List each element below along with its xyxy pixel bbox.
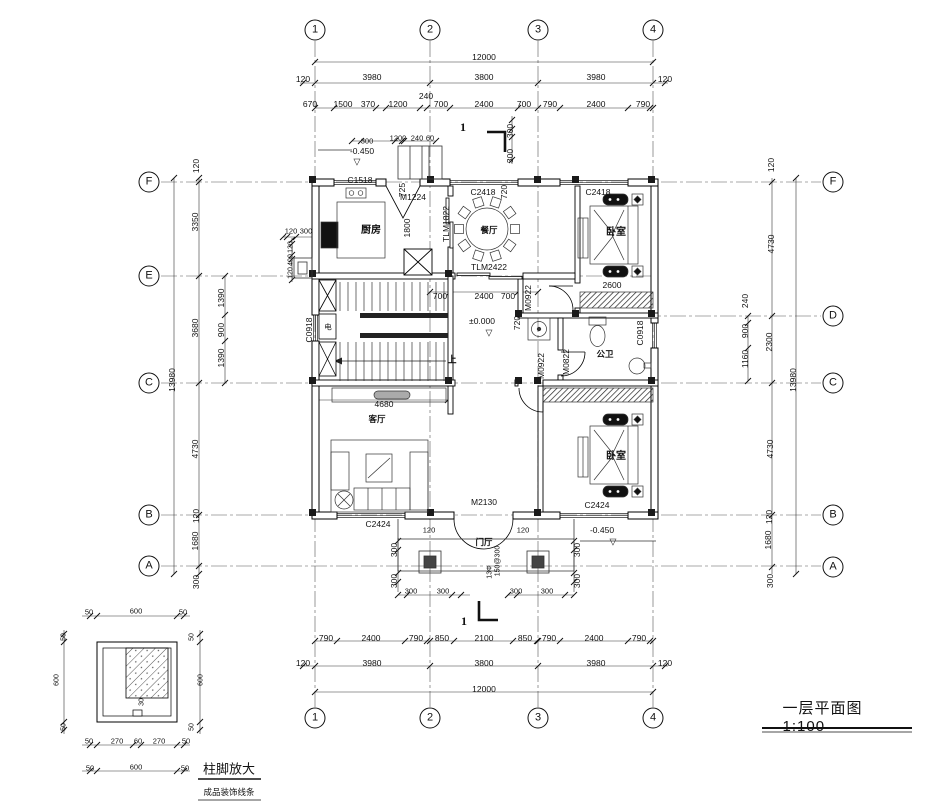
text-tinyv: 600 — [198, 674, 205, 686]
text-tiny: 300 — [437, 587, 450, 595]
text-tiny: 120 — [517, 526, 530, 534]
grid-bubble-3-top: 3 — [528, 20, 549, 41]
grid-bubble-A-right: A — [823, 557, 844, 578]
text-dim: 700 — [434, 100, 448, 109]
text-dim: 700 — [501, 292, 515, 301]
text-tiny: 240 — [411, 134, 424, 142]
text-dim: 700 — [517, 100, 531, 109]
text-tiny: 600 — [130, 763, 143, 771]
room-label-living: 客厅 — [368, 415, 385, 424]
text-tinyv: 50 — [61, 723, 68, 731]
text-dimv: 300 — [390, 543, 399, 557]
sliding-door-TLM2422: TLM2422 — [471, 263, 507, 272]
room-label-bedroom-top: 卧室 — [606, 228, 626, 238]
text-tiny: 300 — [300, 227, 313, 235]
text-dim: 240 — [419, 92, 433, 101]
text-tiny: 270 — [111, 737, 124, 745]
text-tinyv: 30 — [139, 698, 146, 706]
grid-bubble-4-top: 4 — [643, 20, 664, 41]
text-dim: 790 — [542, 634, 556, 643]
text-dim: 2400 — [362, 634, 381, 643]
text-tiny: 50 — [181, 764, 189, 772]
window-C2424-bedroom: C2424 — [584, 501, 609, 510]
text-dim: 790 — [319, 634, 333, 643]
text-dim: 2400 — [475, 292, 494, 301]
text-tiny: 300 — [510, 587, 523, 595]
text-dimv: 720 — [500, 185, 509, 199]
text-dimv: 120 — [192, 509, 201, 523]
text-dimv: 725 — [398, 183, 407, 197]
text-dimv: 900 — [741, 324, 750, 338]
text-tiny: 50 — [182, 737, 190, 745]
window-C0918-right: C0918 — [636, 320, 645, 345]
grid-bubble-F-right: F — [823, 172, 844, 193]
text-dimv: 300 — [573, 574, 582, 588]
text-dimv: 120 — [765, 510, 774, 524]
text-dim: 3980 — [587, 659, 606, 668]
text-dimv: 13980 — [789, 368, 798, 392]
text-tinyv: 120 — [288, 241, 295, 253]
text-dim: 2600 — [603, 281, 622, 290]
grid-bubble-1-top: 1 — [305, 20, 326, 41]
text-dim: 1500 — [334, 100, 353, 109]
text-dim: 3800 — [475, 659, 494, 668]
level-triangle-bottom: ▽ — [610, 538, 617, 547]
grid-bubble-2-bottom: 2 — [420, 708, 441, 729]
grid-bubble-E-left: E — [139, 266, 160, 287]
window-C0918-left: C0918 — [305, 317, 314, 342]
text-dim: 4680 — [375, 400, 394, 409]
text-tiny: 50 — [179, 608, 187, 616]
room-label-bedroom-bottom: 卧室 — [606, 452, 626, 462]
text-dim: 12000 — [472, 53, 496, 62]
text-tiny: 300 — [405, 587, 418, 595]
text-tiny: 50 — [86, 764, 94, 772]
stair-up-label: 上 — [447, 356, 456, 365]
section-mark-1-top: 1 — [460, 121, 466, 133]
text-dim: 3980 — [363, 73, 382, 82]
text-dimv: 3350 — [191, 213, 200, 232]
text-dimv: 2300 — [765, 333, 774, 352]
text-tiny: 120 — [285, 227, 298, 235]
text-tinyv: 50 — [189, 723, 196, 731]
text-dimv: 1390 — [217, 289, 226, 308]
text-tinyv: 150@300 — [495, 546, 502, 576]
door-M0922-bedroom-top: M0922 — [524, 285, 533, 311]
text-dim: 850 — [518, 634, 532, 643]
text-dimv: 300 — [506, 124, 515, 138]
text-dimv: 1390 — [217, 349, 226, 368]
drawing-title: 一层平面图 1:100 — [783, 697, 890, 735]
grid-bubble-1-bottom: 1 — [305, 708, 326, 729]
door-M0822-bath: M0822 — [562, 349, 571, 375]
text-tiny: 270 — [153, 737, 166, 745]
door-M2130-entry: M2130 — [471, 498, 497, 507]
text-dim: 790 — [632, 634, 646, 643]
text-dimv: 1160 — [741, 350, 750, 368]
text-tiny: 50 — [85, 737, 93, 745]
text-dim: 700 — [433, 292, 447, 301]
text-dim: 2400 — [587, 100, 606, 109]
text-dim: 120 — [296, 659, 310, 668]
text-dimv: 900 — [217, 323, 226, 337]
text-dimv: 300 — [766, 574, 775, 588]
level-mark-bottom: -0.450 — [590, 526, 614, 535]
text-dimv: 1680 — [191, 532, 200, 551]
text-dim: 2100 — [475, 634, 494, 643]
text-dimv: 720 — [513, 316, 522, 330]
text-tiny: 60 — [134, 737, 142, 745]
text-dim: 670 — [303, 100, 317, 109]
text-dim: 3800 — [475, 73, 494, 82]
section-mark-1-bottom: 1 — [461, 615, 467, 627]
text-dim: 790 — [409, 634, 423, 643]
text-dim: 3980 — [363, 659, 382, 668]
text-dimv: 3680 — [191, 319, 200, 338]
text-dimv: 4730 — [191, 440, 200, 459]
text-dim: 850 — [435, 634, 449, 643]
text-dim: 2400 — [475, 100, 494, 109]
text-dimv: 300 — [390, 574, 399, 588]
room-label-bathroom: 公卫 — [596, 350, 613, 359]
text-tiny: 50 — [85, 608, 93, 616]
text-dimv: 1800 — [403, 219, 412, 238]
grid-bubble-D-right: D — [823, 306, 844, 327]
text-tiny: 60 — [426, 134, 434, 142]
text-tiny: 300 — [361, 137, 374, 145]
text-tinyv: 13Φ — [487, 565, 494, 578]
text-dimv: 4730 — [767, 235, 776, 254]
text-tinyv: 50 — [61, 633, 68, 641]
text-tinyv: 600 — [54, 674, 61, 686]
grid-bubble-3-bottom: 3 — [528, 708, 549, 729]
text-tiny: 600 — [130, 607, 143, 615]
text-overlay: 12341234FECBAFDCBA1200012039803800398012… — [0, 0, 943, 803]
room-label-kitchen: 厨房 — [361, 226, 381, 236]
text-dimv: 300 — [573, 543, 582, 557]
window-C2418-dining: C2418 — [470, 188, 495, 197]
text-dimv: 300 — [506, 149, 515, 163]
text-dim: 790 — [543, 100, 557, 109]
detail-title: 柱脚放大 — [203, 759, 255, 778]
text-dimv: 4730 — [766, 440, 775, 459]
level-triangle-zero: ▽ — [486, 329, 493, 338]
text-dim: 3980 — [587, 73, 606, 82]
grid-bubble-B-right: B — [823, 505, 844, 526]
grid-bubble-C-left: C — [139, 373, 160, 394]
grid-bubble-B-left: B — [139, 505, 160, 526]
grid-bubble-F-left: F — [139, 172, 160, 193]
window-C2424-living: C2424 — [365, 520, 390, 529]
text-dim: 120 — [658, 75, 672, 84]
grid-bubble-2-top: 2 — [420, 20, 441, 41]
electric-panel-label: 电 — [324, 323, 332, 331]
text-dimv: 300 — [192, 575, 201, 589]
text-dim: 120 — [296, 75, 310, 84]
detail-subtitle: 成品装饰线条 — [203, 786, 254, 798]
text-dim: 1200 — [389, 100, 408, 109]
text-dim: 2400 — [585, 634, 604, 643]
text-dim: 790 — [636, 100, 650, 109]
sliding-door-TLM1822: TLM1822 — [442, 206, 451, 242]
text-dim: 120 — [658, 659, 672, 668]
grid-bubble-4-bottom: 4 — [643, 708, 664, 729]
grid-bubble-A-left: A — [139, 556, 160, 577]
window-C2418-bedroom: C2418 — [585, 188, 610, 197]
text-tinyv: 120 — [288, 267, 295, 279]
floor-plan-canvas: 12341234FECBAFDCBA1200012039803800398012… — [0, 0, 943, 803]
text-dimv: 120 — [192, 159, 201, 173]
text-tinyv: 400 — [288, 254, 295, 266]
room-label-dining: 餐厅 — [480, 226, 497, 235]
room-label-foyer: 门厅 — [475, 538, 492, 547]
text-dim: 12000 — [472, 685, 496, 694]
level-triangle-top: ▽ — [354, 158, 361, 167]
grid-bubble-C-right: C — [823, 373, 844, 394]
text-tiny: 1200 — [390, 134, 407, 142]
text-dimv: 120 — [767, 158, 776, 172]
text-tiny: 300 — [541, 587, 554, 595]
level-mark-zero: ±0.000 — [469, 317, 495, 326]
text-dimv: 1680 — [764, 531, 773, 550]
text-dimv: 240 — [741, 294, 750, 308]
door-M0922-bedroom-bottom: M0922 — [537, 353, 546, 379]
text-tiny: 120 — [423, 526, 436, 534]
window-C1518: C1518 — [347, 176, 372, 185]
text-tinyv: 50 — [189, 633, 196, 641]
level-mark-top: -0.450 — [350, 147, 374, 156]
text-dimv: 13980 — [168, 368, 177, 392]
text-dim: 370 — [361, 100, 375, 109]
